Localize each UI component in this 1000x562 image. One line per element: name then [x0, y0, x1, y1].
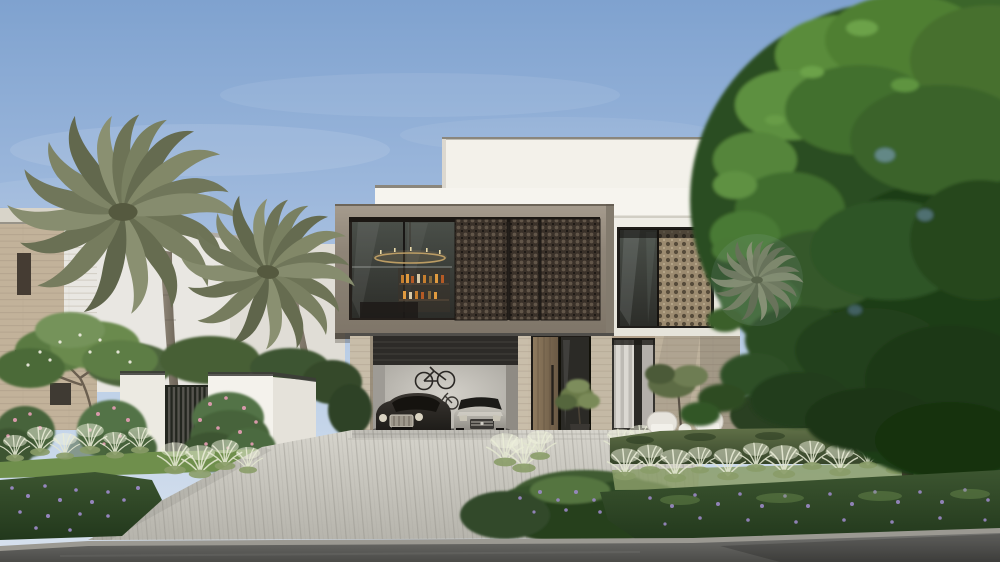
coupe-headlight-right [415, 413, 423, 421]
volume-side-face [606, 204, 614, 333]
second-floor-volume [335, 204, 614, 343]
coupe-grille [390, 415, 413, 427]
distant-palm [710, 234, 803, 326]
coupe-headlight-left [379, 414, 387, 422]
mashrabiya-screen-3 [541, 219, 600, 320]
garage [372, 336, 518, 434]
sedan-headlight-right [493, 415, 501, 421]
curtain [614, 340, 634, 428]
interior-furniture [360, 302, 418, 318]
neighbor-window [17, 253, 31, 295]
neighbor-window-low [50, 383, 71, 405]
roof-box-cap [442, 137, 718, 140]
garage-door-rolled [373, 336, 518, 365]
architectural-render [0, 0, 1000, 562]
entrance-door [533, 337, 558, 438]
mashrabiya-screens [455, 219, 600, 320]
mashrabiya-screen-2 [510, 219, 539, 320]
mashrabiya-screen-1 [455, 219, 507, 320]
villa-scene [0, 0, 1000, 562]
roof-box [442, 139, 718, 188]
balcony-glass [352, 221, 455, 318]
sedan-headlight-left [459, 415, 467, 421]
